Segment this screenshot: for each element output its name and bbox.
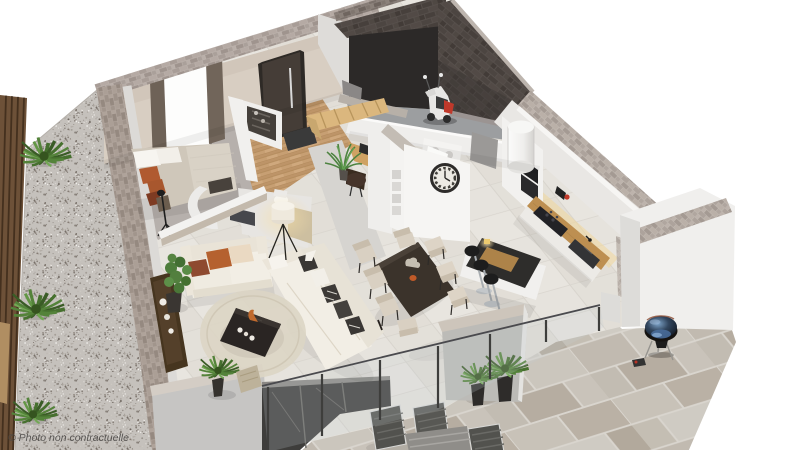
svg-text:© Photo non contractuelle: © Photo non contractuelle xyxy=(8,432,129,444)
